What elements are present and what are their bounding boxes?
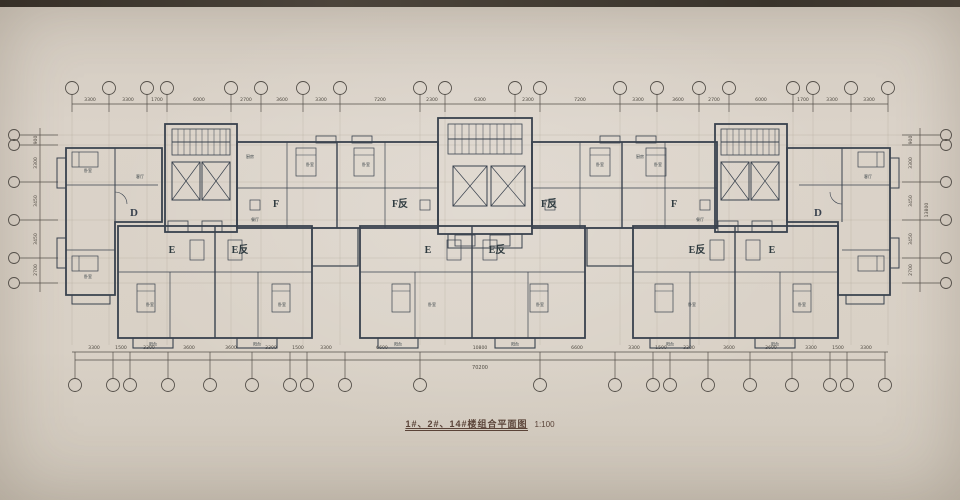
svg-text:厨房: 厨房	[636, 153, 644, 159]
axis-grid	[58, 112, 902, 345]
stair-icon	[721, 129, 779, 155]
drawing-scale: 1:100	[535, 420, 555, 429]
svg-text:6300: 6300	[474, 97, 486, 103]
svg-text:3600: 3600	[183, 345, 195, 351]
stair-icon	[172, 129, 230, 155]
unit-label-e-rev: E反	[489, 243, 506, 256]
svg-text:1500: 1500	[832, 345, 844, 351]
svg-text:1700: 1700	[151, 97, 163, 103]
link-bay	[587, 228, 633, 266]
svg-text:客厅: 客厅	[136, 173, 144, 179]
svg-text:阳台: 阳台	[149, 341, 157, 347]
svg-text:3300: 3300	[860, 345, 872, 351]
svg-text:卧室: 卧室	[654, 161, 662, 167]
unit-label-f-rev: F反	[541, 197, 557, 210]
svg-text:6000: 6000	[193, 97, 205, 103]
unit-e-cluster-2	[360, 226, 585, 348]
svg-text:2700: 2700	[908, 264, 914, 276]
svg-text:卧室: 卧室	[798, 301, 806, 307]
overall-height-dimension: 13800	[924, 203, 930, 218]
svg-text:卧室: 卧室	[278, 301, 286, 307]
svg-text:3450: 3450	[908, 195, 914, 207]
svg-text:卧室: 卧室	[84, 273, 92, 279]
left-axis: 900 3300 3450 3450 2700	[9, 128, 59, 292]
svg-text:2700: 2700	[33, 264, 39, 276]
drawing-title-block: 1#、2#、14#楼组合平面图1:100	[0, 414, 960, 432]
svg-text:3300: 3300	[908, 157, 914, 169]
svg-text:3300: 3300	[122, 97, 134, 103]
floor-plan-photo: 3300 3300 1700 6000 2700 3600 3300 7200 …	[0, 0, 960, 500]
unit-label-e-rev: E反	[689, 243, 706, 256]
svg-text:厨房: 厨房	[246, 153, 254, 159]
svg-text:3600: 3600	[276, 97, 288, 103]
svg-text:阳台: 阳台	[666, 341, 674, 347]
unit-label-d-left: D	[130, 207, 138, 219]
balcony	[57, 238, 66, 268]
svg-text:3300: 3300	[863, 97, 875, 103]
stair-icon	[448, 124, 522, 154]
svg-text:阳台: 阳台	[394, 341, 402, 347]
elevator-icon	[172, 162, 200, 200]
unit-label-e: E	[769, 245, 776, 256]
dimension-label: 3300	[84, 97, 96, 103]
svg-text:1500: 1500	[115, 345, 127, 351]
balcony	[72, 295, 110, 304]
svg-text:阳台: 阳台	[511, 341, 519, 347]
svg-text:3300: 3300	[805, 345, 817, 351]
svg-text:1500: 1500	[292, 345, 304, 351]
top-axis: 3300 3300 1700 6000 2700 3600 3300 7200 …	[66, 82, 895, 113]
balcony	[890, 238, 899, 268]
unit-label-e: E	[425, 245, 432, 256]
svg-text:3600: 3600	[723, 345, 735, 351]
svg-text:3450: 3450	[33, 195, 39, 207]
right-axis: 900 3300 3450 3450 2700 13800	[902, 128, 952, 292]
svg-text:客厅: 客厅	[864, 173, 872, 179]
svg-text:3300: 3300	[628, 345, 640, 351]
svg-text:3300: 3300	[826, 97, 838, 103]
svg-text:7200: 7200	[374, 97, 386, 103]
unit-label-f: F	[671, 199, 677, 210]
axis-marker	[69, 379, 82, 392]
drawing-title: 1#、2#、14#楼组合平面图	[405, 419, 527, 431]
unit-label-f-rev: F反	[392, 197, 408, 210]
link-bay	[312, 228, 358, 266]
unit-label-d-right: D	[814, 207, 822, 219]
room-label: 卧室	[84, 167, 92, 173]
unit-label-f: F	[273, 199, 279, 210]
elevator-icon	[721, 162, 749, 200]
unit-label-e-rev: E反	[232, 243, 249, 256]
svg-text:2300: 2300	[426, 97, 438, 103]
svg-text:卧室: 卧室	[428, 301, 436, 307]
svg-text:卧室: 卧室	[536, 301, 544, 307]
svg-text:餐厅: 餐厅	[251, 216, 259, 222]
svg-text:卧室: 卧室	[688, 301, 696, 307]
core-center	[438, 118, 532, 248]
svg-text:卧室: 卧室	[306, 161, 314, 167]
svg-text:6000: 6000	[755, 97, 767, 103]
svg-text:1700: 1700	[797, 97, 809, 103]
svg-text:卧室: 卧室	[362, 161, 370, 167]
svg-text:7200: 7200	[574, 97, 586, 103]
unit-e-cluster-3	[633, 226, 838, 348]
axis-marker	[9, 130, 20, 141]
svg-text:3300: 3300	[320, 345, 332, 351]
svg-text:3300: 3300	[33, 157, 39, 169]
svg-text:阳台: 阳台	[253, 341, 261, 347]
elevator-icon	[453, 166, 487, 206]
svg-text:900: 900	[33, 136, 39, 145]
svg-text:2700: 2700	[708, 97, 720, 103]
balcony	[57, 158, 66, 188]
elevator-icon	[202, 162, 230, 200]
axis-marker	[941, 130, 952, 141]
svg-text:阳台: 阳台	[771, 341, 779, 347]
core-left	[165, 124, 237, 232]
svg-text:3300: 3300	[88, 345, 100, 351]
overall-length-dimension: 70200	[472, 365, 488, 371]
svg-text:3450: 3450	[33, 233, 39, 245]
svg-text:3600: 3600	[672, 97, 684, 103]
svg-text:2700: 2700	[240, 97, 252, 103]
elevator-icon	[751, 162, 779, 200]
svg-text:6600: 6600	[571, 345, 583, 351]
core-right	[715, 124, 787, 232]
svg-text:10800: 10800	[473, 345, 488, 351]
svg-text:3300: 3300	[632, 97, 644, 103]
svg-text:900: 900	[908, 136, 914, 145]
balcony	[890, 158, 899, 188]
elevator-icon	[491, 166, 525, 206]
bottom-axis: 3300 1500 3300 3600 3600 3300 1500 3300 …	[69, 345, 892, 392]
axis-marker	[66, 82, 79, 95]
svg-text:3450: 3450	[908, 233, 914, 245]
svg-text:3300: 3300	[315, 97, 327, 103]
svg-text:卧室: 卧室	[596, 161, 604, 167]
svg-text:3600: 3600	[225, 345, 237, 351]
svg-text:2300: 2300	[522, 97, 534, 103]
svg-text:卧室: 卧室	[146, 301, 154, 307]
unit-label-e: E	[169, 245, 176, 256]
svg-text:餐厅: 餐厅	[696, 216, 704, 222]
balcony	[846, 295, 884, 304]
